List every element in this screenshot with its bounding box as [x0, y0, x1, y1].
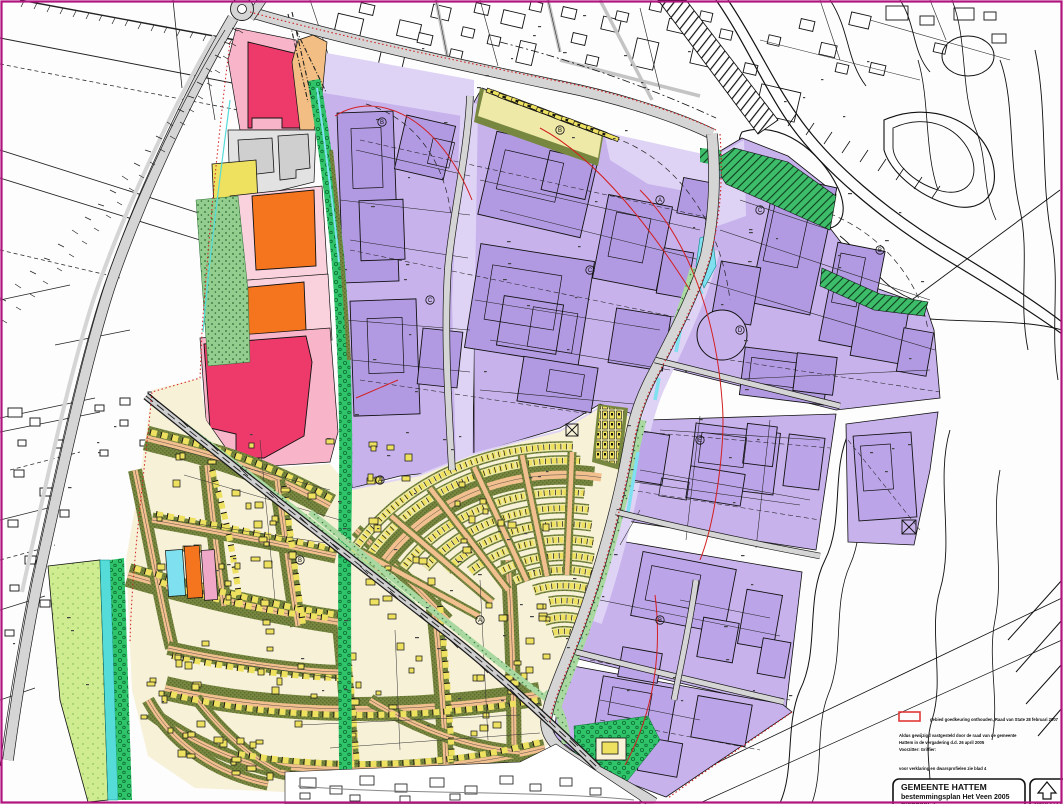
- svg-text:C: C: [428, 298, 433, 304]
- svg-text:Voorzitter:: Voorzitter: Griffier:: [899, 747, 936, 752]
- svg-text:B: B: [658, 618, 662, 624]
- svg-text:Aldus gewijzigd vastgesteld do: Aldus gewijzigd vastgesteld door de raad…: [899, 733, 1017, 738]
- svg-text:D: D: [738, 328, 743, 334]
- svg-text:Hattem in de vergadering d.d.: Hattem in de vergadering d.d. 26 april 2…: [899, 740, 985, 745]
- svg-text:A: A: [378, 478, 382, 484]
- svg-text:bestemmingsplan Het Veen 2005: bestemmingsplan Het Veen 2005: [901, 794, 1010, 801]
- svg-text:C: C: [588, 268, 593, 274]
- svg-text:A: A: [658, 198, 662, 204]
- svg-text:B: B: [558, 128, 562, 134]
- svg-text:voor verklaring en dwarsprofie: voor verklaring en dwarsprofielen zie bl…: [899, 766, 987, 771]
- svg-text:C: C: [758, 208, 763, 214]
- svg-text:A: A: [478, 618, 482, 624]
- svg-text:E: E: [698, 438, 702, 444]
- svg-text:B: B: [380, 120, 384, 126]
- svg-text:GEMEENTE HATTEM: GEMEENTE HATTEM: [901, 782, 987, 792]
- svg-text:gebied goedkeuring onthouden,: gebied goedkeuring onthouden, Raad van S…: [930, 717, 1059, 722]
- svg-text:B: B: [298, 558, 302, 564]
- svg-text:B: B: [878, 248, 882, 254]
